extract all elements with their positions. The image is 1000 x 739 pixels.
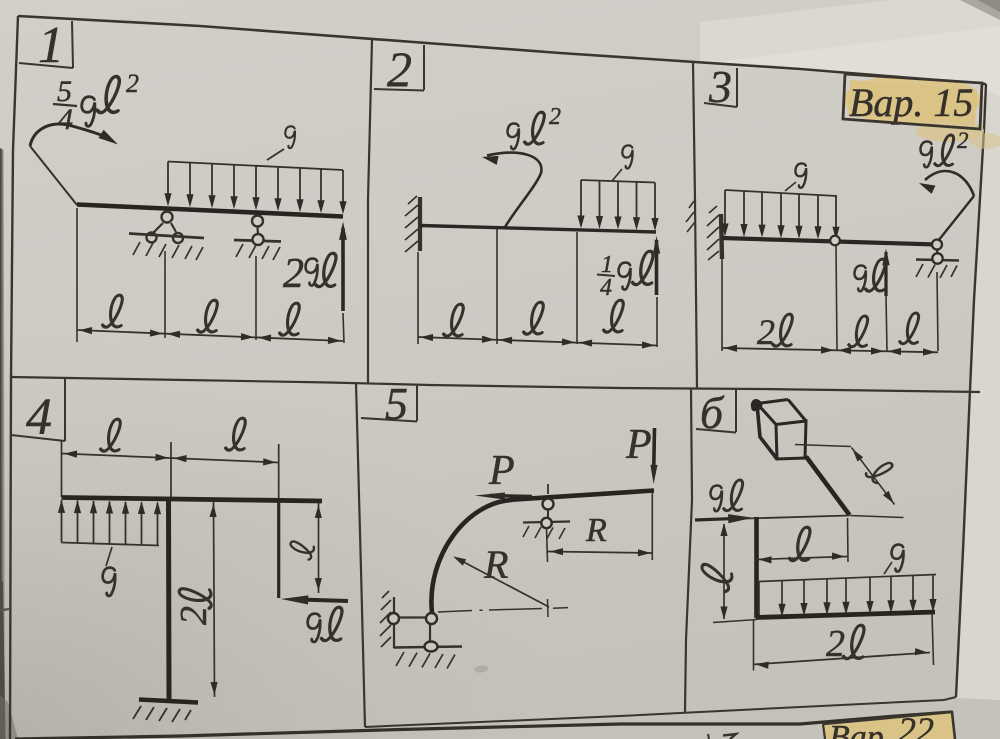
svg-text:4: 4 — [600, 275, 612, 301]
svg-text:2: 2 — [826, 623, 845, 665]
svg-text:R: R — [585, 512, 607, 549]
svg-text:P: P — [488, 448, 515, 494]
svg-text:2: 2 — [957, 128, 969, 153]
svg-text:5: 5 — [385, 378, 408, 429]
svg-text:Вар. 15: Вар. 15 — [849, 80, 973, 125]
svg-text:2: 2 — [387, 41, 412, 97]
svg-text:R: R — [483, 542, 508, 587]
svg-text:2: 2 — [126, 69, 139, 98]
svg-text:22: 22 — [898, 710, 934, 739]
svg-text:2: 2 — [549, 104, 561, 130]
svg-text:Вар: Вар — [829, 719, 884, 739]
svg-text:4: 4 — [58, 103, 73, 136]
svg-text:б: б — [700, 387, 725, 438]
svg-text:4: 4 — [26, 389, 52, 446]
svg-text:2: 2 — [283, 251, 304, 297]
svg-text:3: 3 — [708, 61, 732, 112]
svg-text:1: 1 — [38, 17, 64, 74]
svg-text:P: P — [625, 422, 652, 468]
